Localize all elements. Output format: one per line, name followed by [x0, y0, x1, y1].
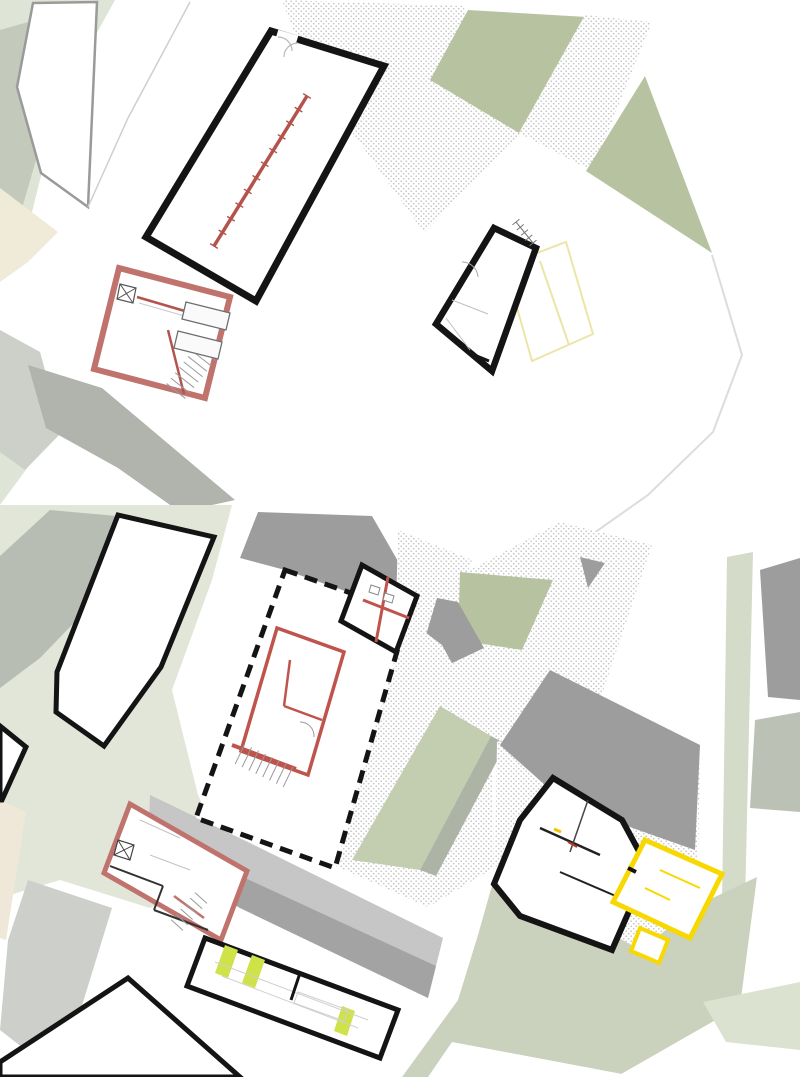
p1-parcel-line: [88, 2, 190, 207]
p1-ghost-divider: [540, 261, 569, 345]
p1-depot: [94, 268, 230, 398]
p1-cottage: [436, 228, 536, 371]
p2-graygreen-east: [750, 712, 800, 812]
site-plan-page: [0, 0, 800, 1077]
p2-shadow-northeast: [760, 558, 800, 700]
site-plan-canvas: [0, 0, 800, 1077]
p2-green-band-east: [722, 552, 753, 905]
p1-boundary-curve: [577, 255, 742, 545]
shapes-layer: [0, 0, 800, 1077]
